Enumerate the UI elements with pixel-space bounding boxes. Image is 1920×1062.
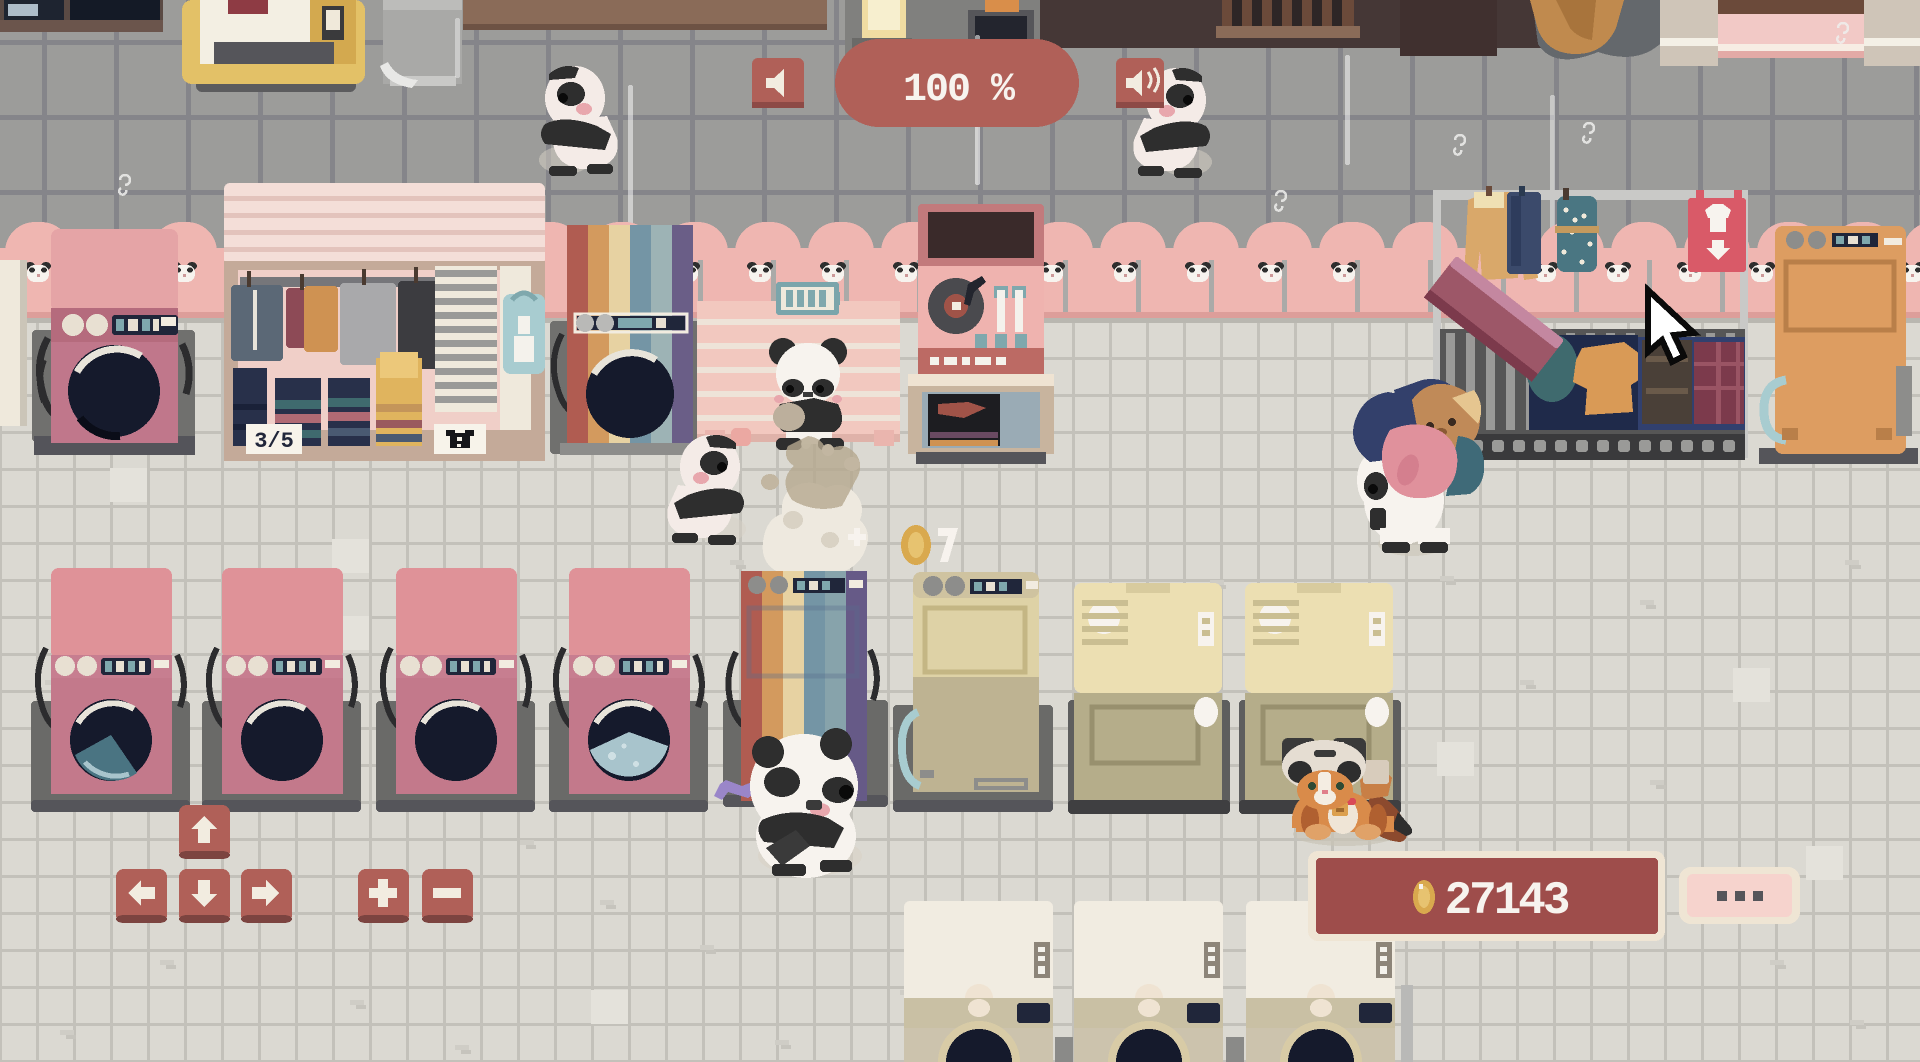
svg-text:100 %: 100 % xyxy=(903,68,1016,113)
svg-text:27143: 27143 xyxy=(1444,875,1568,927)
svg-text:3/5: 3/5 xyxy=(254,429,294,454)
